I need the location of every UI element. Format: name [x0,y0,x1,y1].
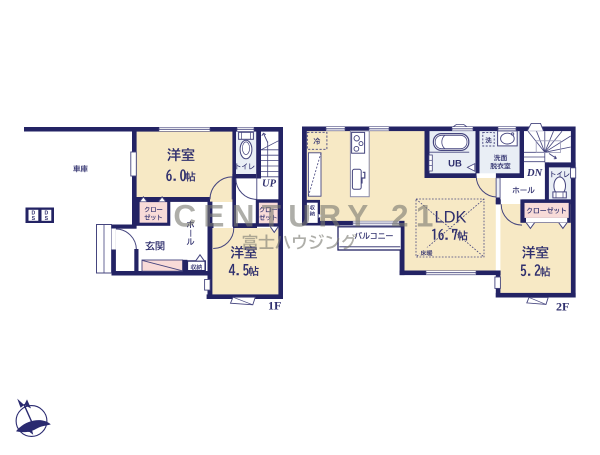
svg-text:2F: 2F [556,300,569,314]
svg-text:S: S [32,216,36,222]
svg-text:1F: 1F [268,299,281,313]
svg-text:CENTURY 21: CENTURY 21 [173,198,440,234]
svg-text:UB: UB [448,159,462,170]
svg-text:DN: DN [526,168,543,179]
svg-text:UP: UP [262,179,277,190]
svg-text:S: S [45,216,49,222]
